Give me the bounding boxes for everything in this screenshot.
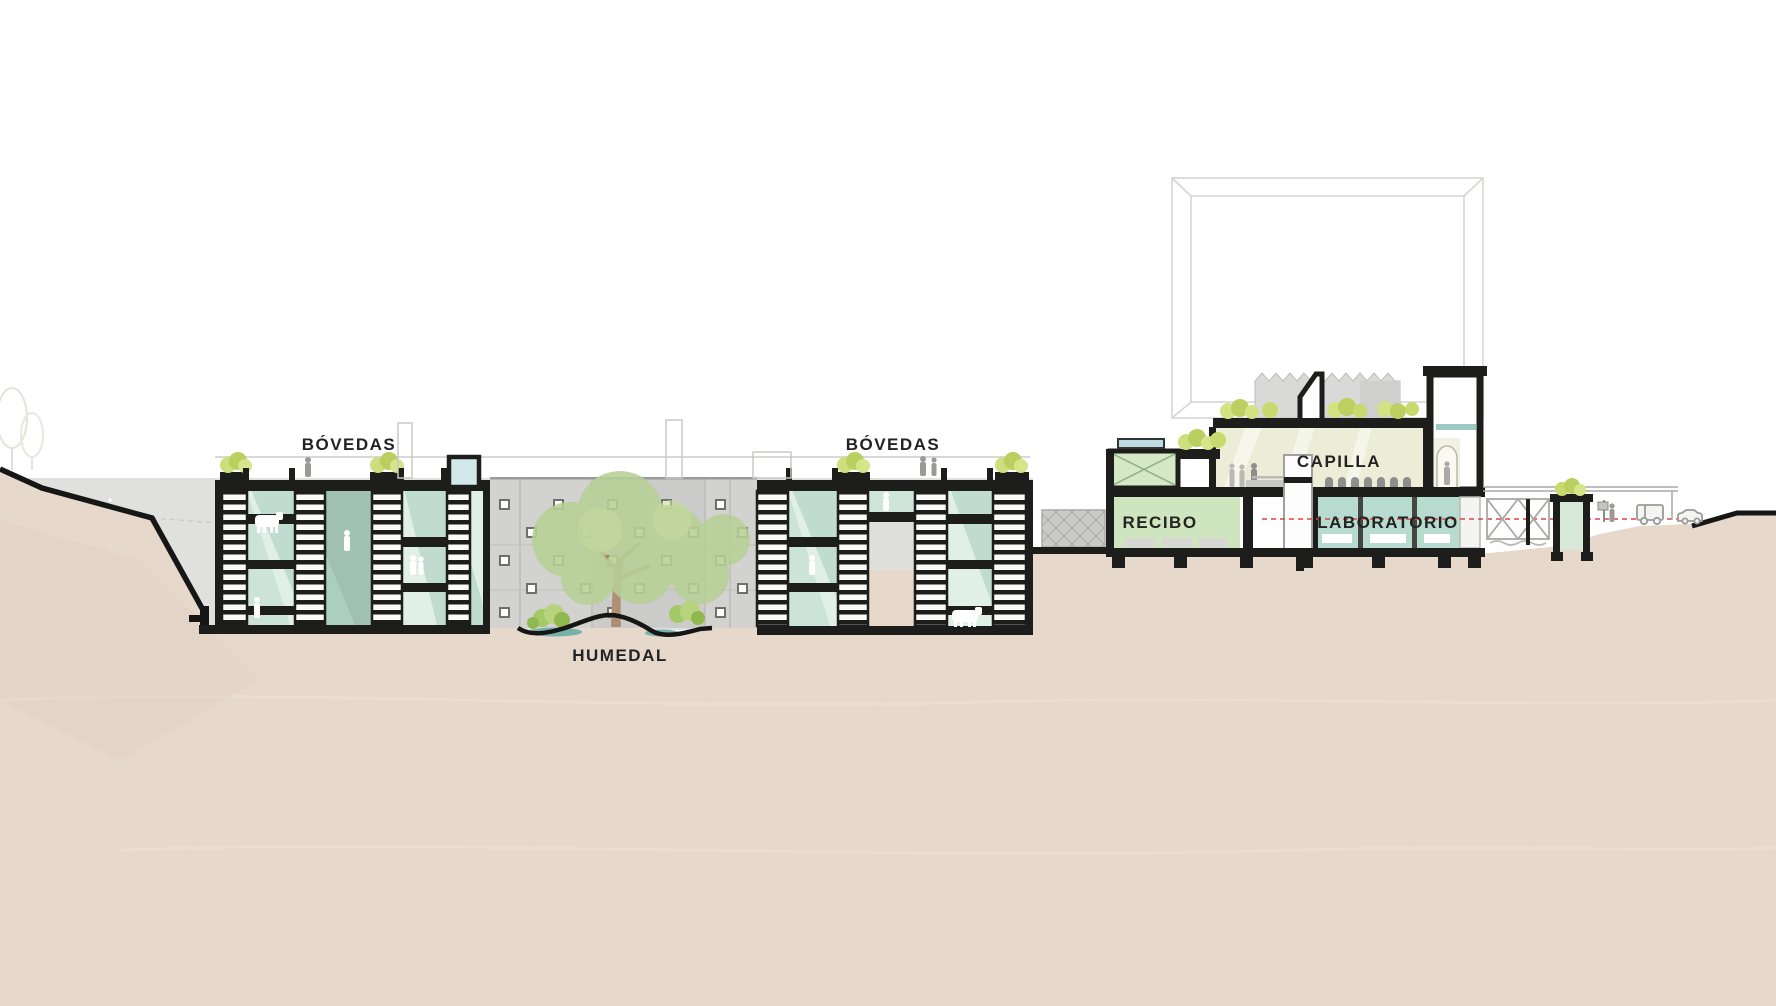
truss-frame: [1487, 499, 1549, 545]
section-svg: BÓVEDAS BÓVEDAS HUMEDAL CAPILLA RECIBO L…: [0, 0, 1776, 1006]
roof-figure: [305, 457, 311, 477]
laboratorio-label: LABORATORIO: [1317, 513, 1458, 532]
section-drawing: BÓVEDAS BÓVEDAS HUMEDAL CAPILLA RECIBO L…: [0, 0, 1776, 1006]
humedal-label: HUMEDAL: [572, 646, 668, 665]
roof-figures: [920, 456, 937, 476]
capilla-label: CAPILLA: [1297, 452, 1381, 471]
car: [1678, 510, 1702, 524]
recibo-label: RECIBO: [1122, 513, 1197, 532]
faint-tree-sketch: [0, 388, 43, 470]
bovedas-label-left: BÓVEDAS: [302, 435, 397, 454]
altar-niche: [1434, 438, 1460, 488]
bovedas-label-right: BÓVEDAS: [846, 435, 941, 454]
truck: [1637, 505, 1663, 524]
capilla-roof: [1213, 418, 1430, 428]
link-slab: [1033, 510, 1113, 554]
base-slab: [1106, 548, 1485, 557]
entry-annex: [1110, 429, 1226, 488]
stair-skylight: [449, 457, 479, 487]
